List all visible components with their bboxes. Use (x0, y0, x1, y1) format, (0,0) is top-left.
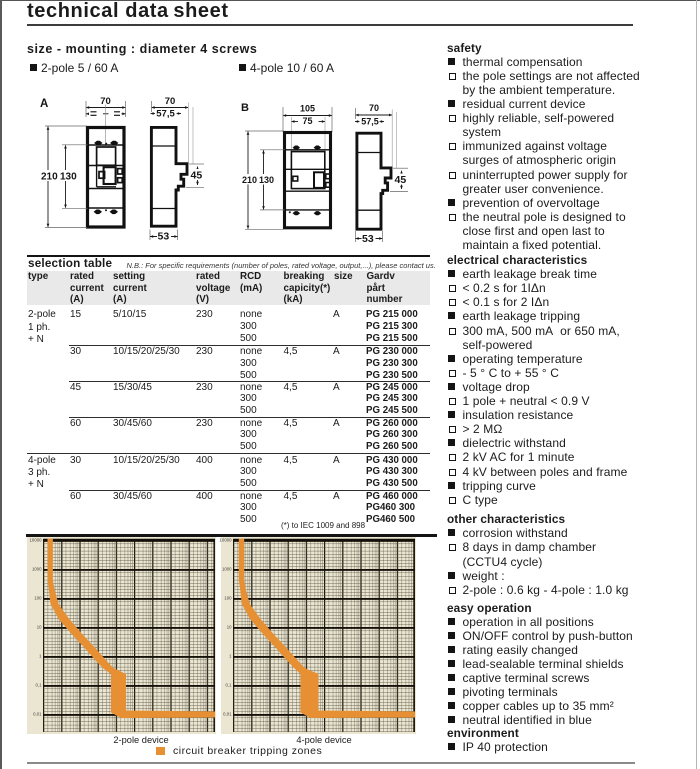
svg-text:210: 210 (41, 172, 58, 183)
svg-text:130: 130 (60, 172, 77, 183)
svg-text:70: 70 (165, 96, 176, 107)
svg-text:130: 130 (259, 175, 274, 185)
svg-text:0,1: 0,1 (226, 683, 233, 688)
svg-text:105: 105 (300, 104, 315, 114)
svg-text:45: 45 (191, 170, 203, 182)
svg-text:57,5: 57,5 (361, 117, 379, 127)
svg-text:0,01: 0,01 (223, 712, 232, 717)
svg-text:0,01: 0,01 (33, 712, 42, 717)
svg-text:A: A (40, 98, 48, 110)
svg-text:70: 70 (369, 103, 379, 113)
svg-text:210: 210 (242, 175, 257, 185)
svg-text:10: 10 (37, 625, 42, 630)
svg-text:10000: 10000 (220, 538, 233, 543)
svg-text:10: 10 (227, 625, 232, 630)
svg-text:100: 100 (224, 596, 232, 601)
svg-text:0,1: 0,1 (36, 683, 43, 688)
svg-text:53: 53 (362, 233, 374, 245)
svg-text:75: 75 (302, 116, 312, 126)
svg-text:45: 45 (395, 174, 407, 186)
svg-text:10000: 10000 (30, 538, 43, 543)
svg-text:53: 53 (158, 231, 170, 243)
svg-text:B: B (241, 102, 249, 114)
svg-text:57,5: 57,5 (156, 109, 175, 120)
svg-text:1000: 1000 (222, 567, 232, 572)
svg-text:100: 100 (34, 596, 42, 601)
svg-text:1000: 1000 (32, 567, 42, 572)
